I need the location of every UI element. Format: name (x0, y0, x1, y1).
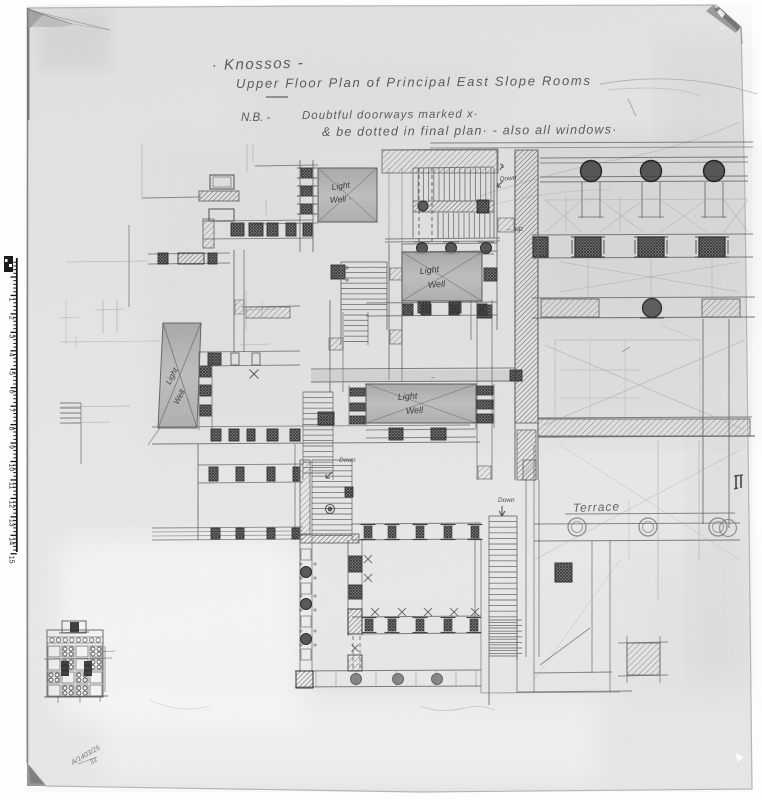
svg-text:· Knossos -: · Knossos - (212, 55, 305, 74)
svg-text:Light: Light (419, 264, 440, 276)
svg-text:11: 11 (8, 482, 15, 489)
svg-text:N.B. -: N.B. - (241, 112, 271, 124)
svg-text:& be dotted in final plan· - a: & be dotted in final plan· - also all wi… (322, 122, 618, 139)
svg-text:Doubtful doorways marked x·: Doubtful doorways marked x· (302, 108, 479, 122)
svg-text:←: ← (430, 374, 437, 381)
svg-text:Upper Floor Plan of Principal: Upper Floor Plan of Principal East Slope… (236, 73, 592, 91)
svg-text:Well: Well (405, 405, 424, 416)
svg-text:14: 14 (8, 537, 15, 545)
svg-text:13: 13 (8, 519, 15, 527)
svg-text:Down: Down (339, 457, 356, 464)
svg-text:12: 12 (8, 500, 15, 508)
svg-text:Terrace: Terrace (573, 499, 621, 515)
svg-text:15: 15 (8, 556, 15, 564)
svg-text:Down: Down (498, 497, 515, 504)
svg-text:Well: Well (427, 279, 446, 290)
svg-text:Light: Light (397, 391, 418, 402)
svg-text:10: 10 (8, 464, 15, 472)
svg-text:Well ·: Well · (329, 193, 351, 205)
svg-text:← up: ← up (506, 226, 523, 233)
